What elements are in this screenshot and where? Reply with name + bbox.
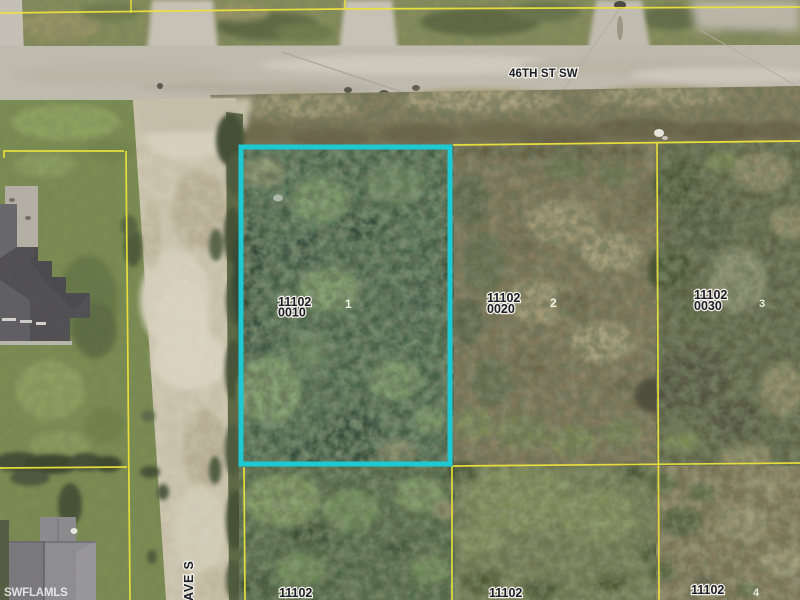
svg-text:46TH ST SW: 46TH ST SW bbox=[509, 68, 578, 80]
svg-text:0010: 0010 bbox=[278, 306, 306, 320]
svg-text:11102: 11102 bbox=[279, 586, 312, 600]
svg-text:AVE S: AVE S bbox=[182, 560, 196, 600]
svg-text:4: 4 bbox=[753, 587, 760, 599]
svg-text:0030: 0030 bbox=[694, 299, 722, 313]
svg-text:0020: 0020 bbox=[487, 302, 515, 316]
svg-text:11102: 11102 bbox=[691, 583, 724, 597]
svg-text:2: 2 bbox=[550, 296, 557, 310]
svg-text:SWFLAMLS: SWFLAMLS bbox=[4, 587, 68, 599]
svg-text:11102: 11102 bbox=[489, 586, 522, 600]
svg-text:3: 3 bbox=[759, 298, 765, 310]
svg-text:1: 1 bbox=[345, 297, 352, 311]
